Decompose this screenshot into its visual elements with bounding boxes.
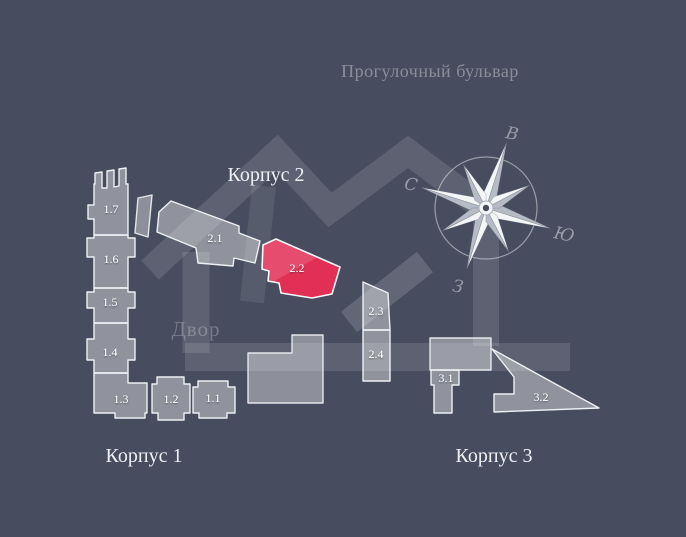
courtyard-label: Двор (171, 317, 220, 341)
building-label-korpus1: Корпус 1 (106, 445, 183, 467)
building-label-korpus3: Корпус 3 (456, 445, 533, 467)
section-1.5[interactable]: 1.5 (87, 288, 135, 323)
street-label: Прогулочный бульвар (341, 61, 519, 81)
section-1.2[interactable]: 1.2 (152, 377, 190, 420)
masterplan-map: Прогулочный бульвар В С Ю (0, 0, 686, 537)
building-label-korpus2: Корпус 2 (228, 164, 305, 186)
section-1.2-shape (152, 377, 190, 420)
section-1.4-shape (87, 323, 135, 373)
section-1.6-shape (87, 235, 135, 288)
section-1.1[interactable]: 1.1 (193, 381, 235, 418)
service-building-korpus3-bar (430, 338, 491, 370)
section-1.5-shape (87, 288, 135, 323)
section-2.4[interactable]: 2.4 (363, 330, 390, 381)
section-1.4[interactable]: 1.4 (87, 323, 135, 373)
section-1.6[interactable]: 1.6 (87, 235, 135, 288)
section-2.4-shape (363, 330, 390, 381)
section-1.1-shape (193, 381, 235, 418)
